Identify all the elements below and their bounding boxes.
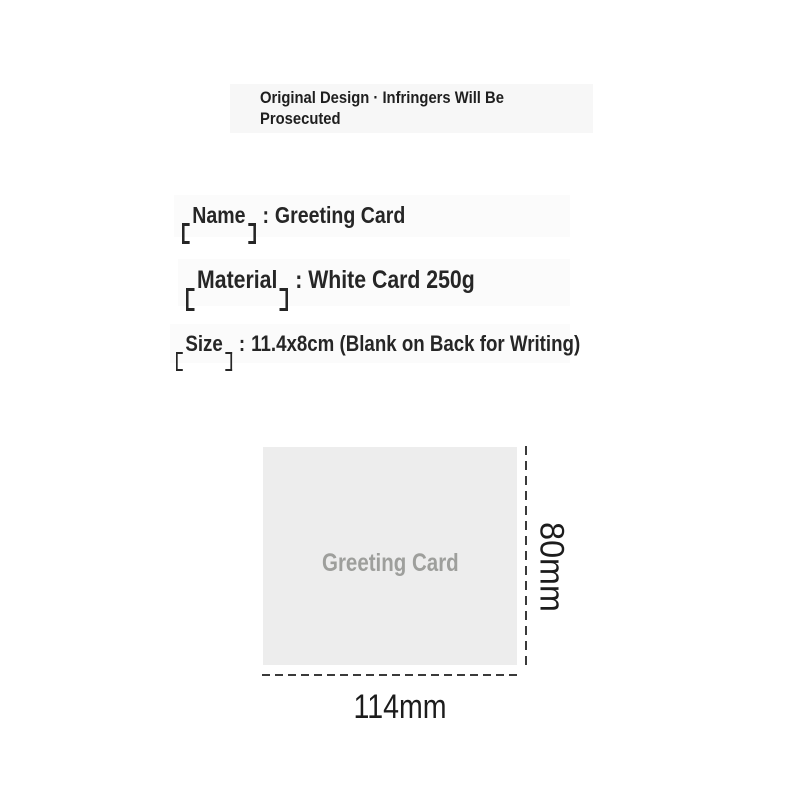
lenticular-bracket-close-icon: 】 <box>280 288 289 311</box>
spec-value: Greeting Card <box>275 202 405 228</box>
spec-row-material: 【Material】:White Card 250g <box>186 266 475 311</box>
card-preview-label: Greeting Card <box>322 549 459 578</box>
lenticular-bracket-close-icon: 】 <box>248 223 256 244</box>
spec-label: Size <box>185 331 222 356</box>
width-dimension-label: 114mm <box>353 688 446 727</box>
copyright-line-2: Prosecuted <box>260 108 504 129</box>
spec-label: Name <box>192 202 245 228</box>
spec-separator: : <box>295 266 302 294</box>
spec-separator: : <box>239 331 245 356</box>
spec-row-size: 【Size】:11.4x8cm (Blank on Back for Writi… <box>176 331 580 371</box>
card-preview: Greeting Card <box>263 447 517 665</box>
lenticular-bracket-close-icon: 】 <box>225 352 232 371</box>
width-dimension-line <box>262 674 520 676</box>
lenticular-bracket-open-icon: 【 <box>176 352 183 371</box>
spec-value: White Card 250g <box>308 266 474 294</box>
copyright-notice: Original Design · Infringers Will Be Pro… <box>260 87 504 129</box>
copyright-line-1: Original Design · Infringers Will Be <box>260 87 504 108</box>
spec-row-name: 【Name】:Greeting Card <box>182 202 405 244</box>
spec-value: 11.4x8cm (Blank on Back for Writing) <box>251 331 580 356</box>
product-spec-sheet: Original Design · Infringers Will Be Pro… <box>0 0 800 800</box>
height-dimension-line <box>525 446 527 667</box>
copyright-notice-box: Original Design · Infringers Will Be Pro… <box>230 84 593 133</box>
spec-separator: : <box>262 202 269 228</box>
height-dimension-label: 80mm <box>532 522 571 612</box>
lenticular-bracket-open-icon: 【 <box>186 288 195 311</box>
lenticular-bracket-open-icon: 【 <box>182 223 190 244</box>
spec-label: Material <box>197 266 277 294</box>
